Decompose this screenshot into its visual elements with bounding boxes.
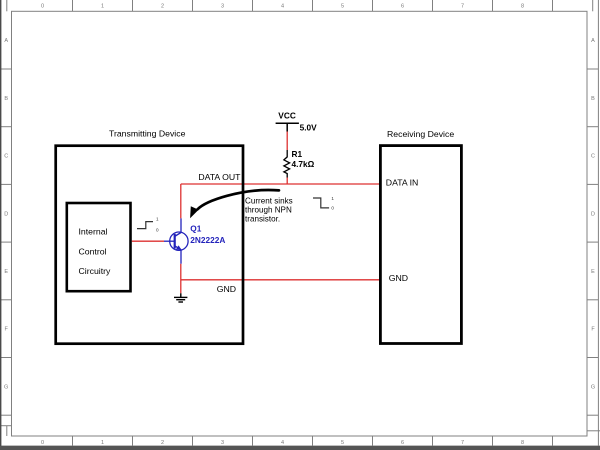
svg-text:2N2222A: 2N2222A bbox=[190, 235, 225, 245]
svg-text:D: D bbox=[4, 211, 8, 217]
svg-text:2: 2 bbox=[161, 4, 164, 10]
svg-text:8: 8 bbox=[521, 440, 524, 446]
svg-text:DATA IN: DATA IN bbox=[386, 178, 419, 188]
svg-text:5: 5 bbox=[341, 440, 344, 446]
svg-text:6: 6 bbox=[401, 4, 404, 10]
svg-text:A: A bbox=[4, 38, 8, 44]
svg-text:Circuitry: Circuitry bbox=[79, 266, 112, 276]
svg-text:DATA OUT: DATA OUT bbox=[198, 172, 241, 182]
svg-text:R1: R1 bbox=[292, 149, 303, 159]
svg-text:8: 8 bbox=[521, 4, 524, 10]
svg-text:G: G bbox=[4, 384, 8, 390]
svg-text:transistor.: transistor. bbox=[245, 215, 280, 224]
svg-text:1: 1 bbox=[156, 216, 159, 221]
svg-text:0: 0 bbox=[156, 228, 159, 233]
svg-text:7: 7 bbox=[461, 440, 464, 446]
svg-text:A: A bbox=[591, 38, 595, 44]
svg-text:5.0V: 5.0V bbox=[300, 123, 318, 133]
svg-text:B: B bbox=[4, 96, 8, 102]
svg-text:3: 3 bbox=[221, 440, 224, 446]
svg-text:G: G bbox=[591, 384, 595, 390]
svg-text:0: 0 bbox=[41, 4, 44, 10]
svg-text:4: 4 bbox=[281, 440, 284, 446]
svg-text:5: 5 bbox=[341, 4, 344, 10]
svg-text:Current sinks: Current sinks bbox=[245, 196, 293, 205]
svg-text:6: 6 bbox=[401, 440, 404, 446]
svg-text:GND: GND bbox=[217, 284, 236, 294]
svg-text:C: C bbox=[591, 154, 595, 160]
svg-text:2: 2 bbox=[161, 440, 164, 446]
svg-text:1: 1 bbox=[101, 440, 104, 446]
svg-text:VCC: VCC bbox=[278, 111, 296, 121]
svg-text:0: 0 bbox=[331, 205, 334, 210]
svg-text:B: B bbox=[591, 96, 595, 102]
svg-text:Control: Control bbox=[79, 247, 107, 257]
svg-text:Transmitting Device: Transmitting Device bbox=[109, 128, 186, 138]
svg-text:4.7kΩ: 4.7kΩ bbox=[292, 159, 315, 169]
svg-text:7: 7 bbox=[461, 4, 464, 10]
svg-text:through NPN: through NPN bbox=[245, 206, 292, 215]
svg-text:3: 3 bbox=[221, 4, 224, 10]
svg-text:Q1: Q1 bbox=[190, 224, 201, 234]
svg-text:0: 0 bbox=[41, 440, 44, 446]
svg-text:E: E bbox=[591, 269, 595, 275]
svg-text:C: C bbox=[4, 154, 8, 160]
svg-text:D: D bbox=[591, 211, 595, 217]
svg-text:Internal: Internal bbox=[79, 226, 108, 236]
svg-text:4: 4 bbox=[281, 4, 284, 10]
svg-text:Receiving Device: Receiving Device bbox=[387, 129, 454, 139]
svg-text:GND: GND bbox=[389, 273, 408, 283]
svg-text:1: 1 bbox=[331, 196, 334, 201]
svg-text:1: 1 bbox=[101, 4, 104, 10]
svg-text:E: E bbox=[4, 269, 8, 275]
